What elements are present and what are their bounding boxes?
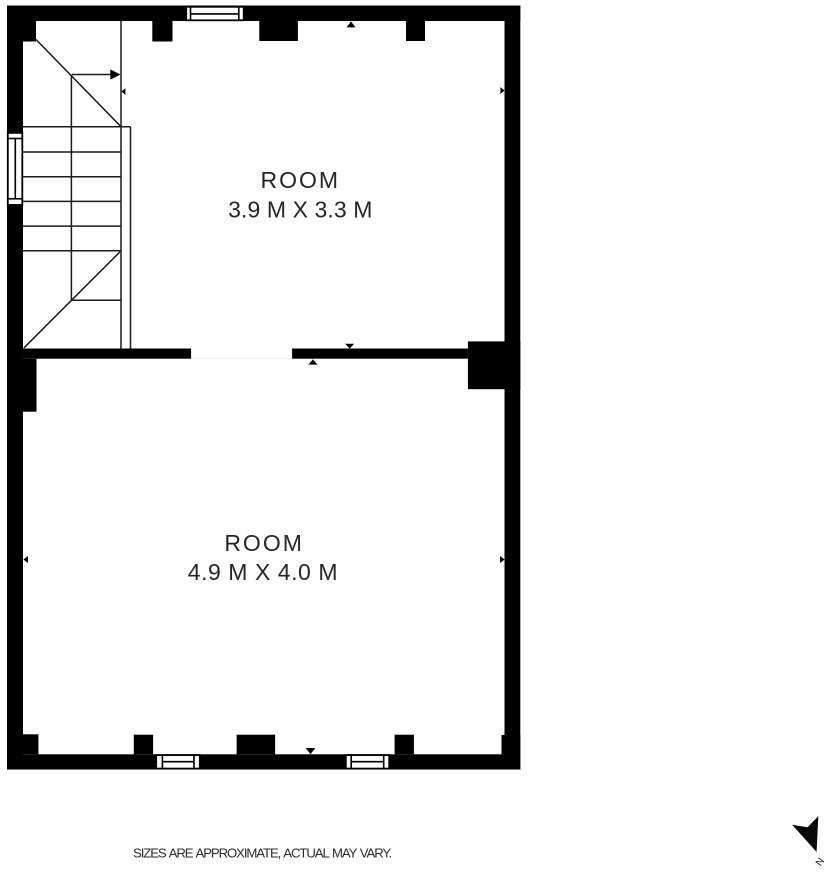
svg-text:4.9 M X 4.0 M: 4.9 M X 4.0 M bbox=[188, 559, 338, 585]
svg-text:3.9 M X 3.3 M: 3.9 M X 3.3 M bbox=[228, 196, 372, 222]
svg-text:SIZES ARE APPROXIMATE, ACTUAL: SIZES ARE APPROXIMATE, ACTUAL MAY VARY. bbox=[133, 846, 391, 861]
svg-text:ROOM: ROOM bbox=[261, 167, 341, 193]
svg-text:ROOM: ROOM bbox=[224, 530, 304, 556]
